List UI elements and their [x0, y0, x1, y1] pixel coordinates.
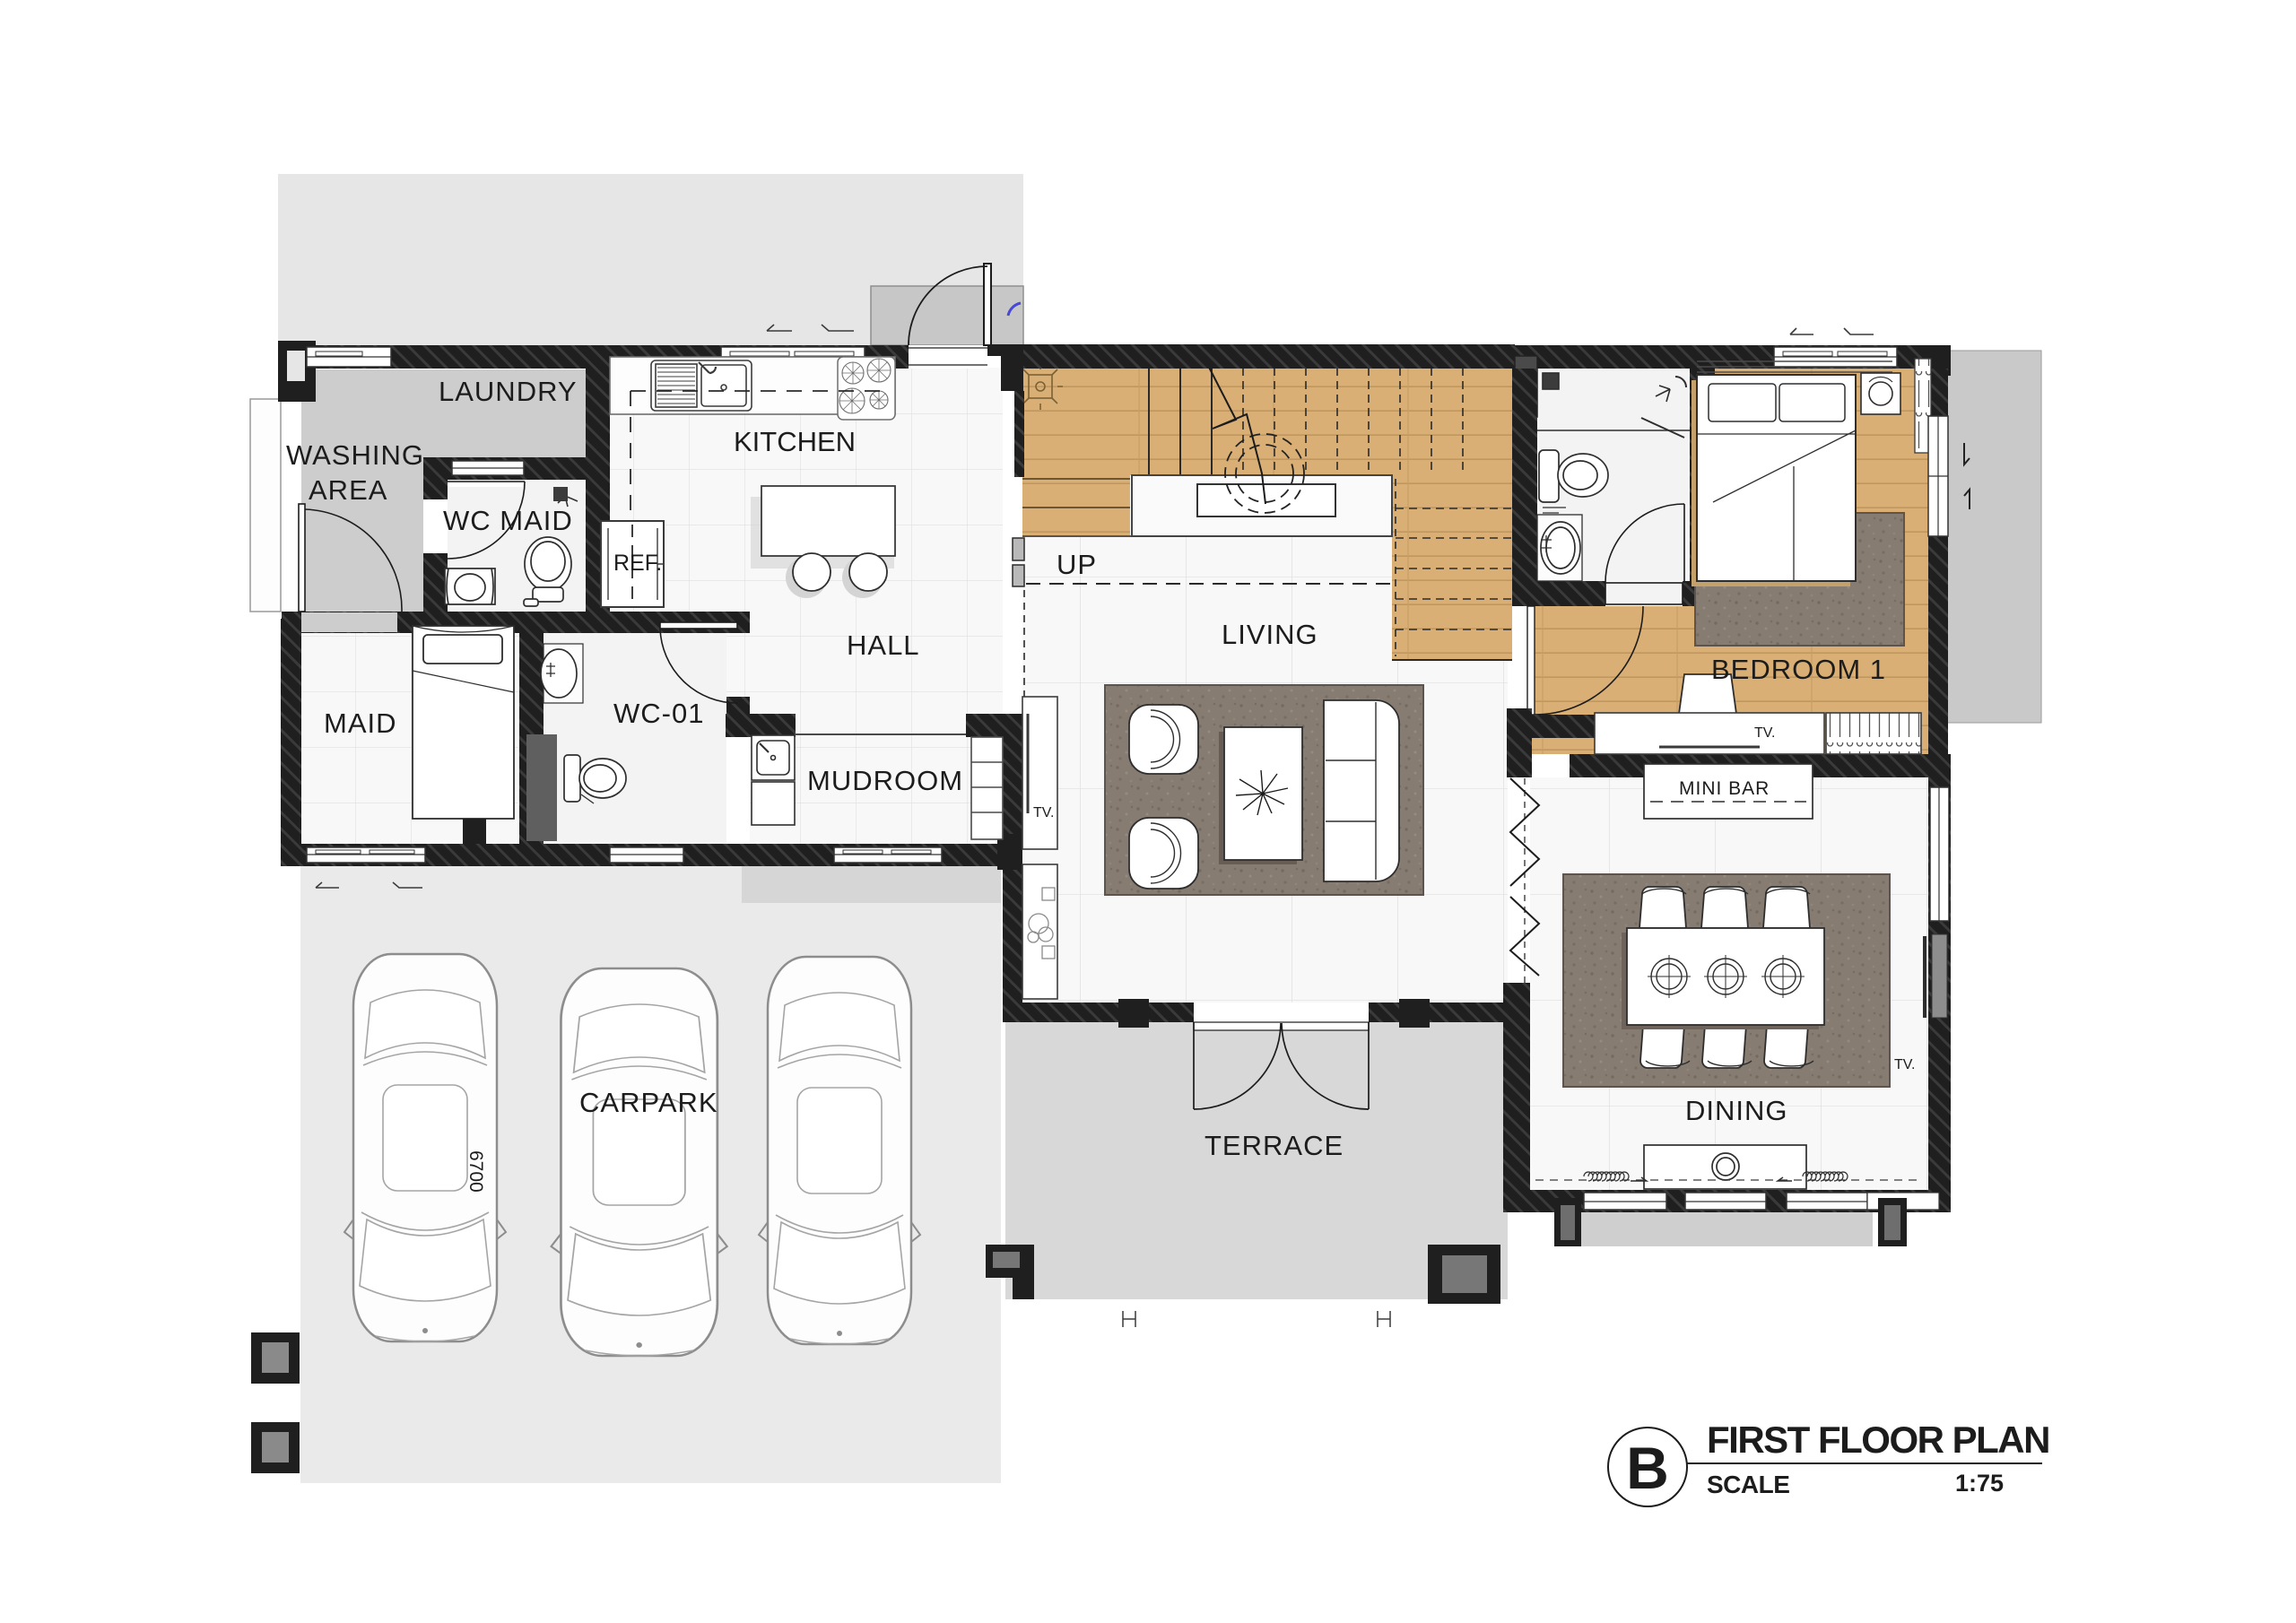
svg-text:LAUNDRY: LAUNDRY — [439, 376, 578, 407]
svg-text:UP: UP — [1057, 549, 1097, 580]
svg-text:TV.: TV. — [1894, 1057, 1915, 1072]
svg-text:AREA: AREA — [309, 474, 387, 506]
svg-text:B: B — [1626, 1435, 1669, 1501]
svg-text:HALL: HALL — [847, 629, 920, 661]
svg-text:BEDROOM 1: BEDROOM 1 — [1711, 654, 1886, 685]
svg-text:SCALE: SCALE — [1707, 1471, 1789, 1498]
svg-text:1:75: 1:75 — [1955, 1470, 2004, 1497]
svg-text:REF.: REF. — [613, 551, 662, 576]
svg-text:LIVING: LIVING — [1222, 619, 1318, 650]
svg-text:6700: 6700 — [465, 1150, 486, 1193]
svg-text:TV.: TV. — [1033, 805, 1054, 820]
svg-text:DINING: DINING — [1685, 1095, 1788, 1126]
svg-text:CARPARK: CARPARK — [579, 1087, 718, 1118]
svg-text:MINI BAR: MINI BAR — [1679, 778, 1770, 799]
svg-text:WASHING: WASHING — [286, 439, 424, 471]
svg-text:MUDROOM: MUDROOM — [807, 765, 963, 796]
svg-text:KITCHEN: KITCHEN — [734, 426, 856, 457]
svg-text:TERRACE: TERRACE — [1205, 1130, 1344, 1161]
svg-text:TV.: TV. — [1754, 725, 1775, 741]
svg-text:WC MAID: WC MAID — [443, 505, 573, 536]
svg-text:WC-01: WC-01 — [613, 698, 704, 729]
svg-text:MAID: MAID — [324, 707, 397, 739]
svg-text:FIRST FLOOR PLAN: FIRST FLOOR PLAN — [1707, 1419, 2049, 1461]
